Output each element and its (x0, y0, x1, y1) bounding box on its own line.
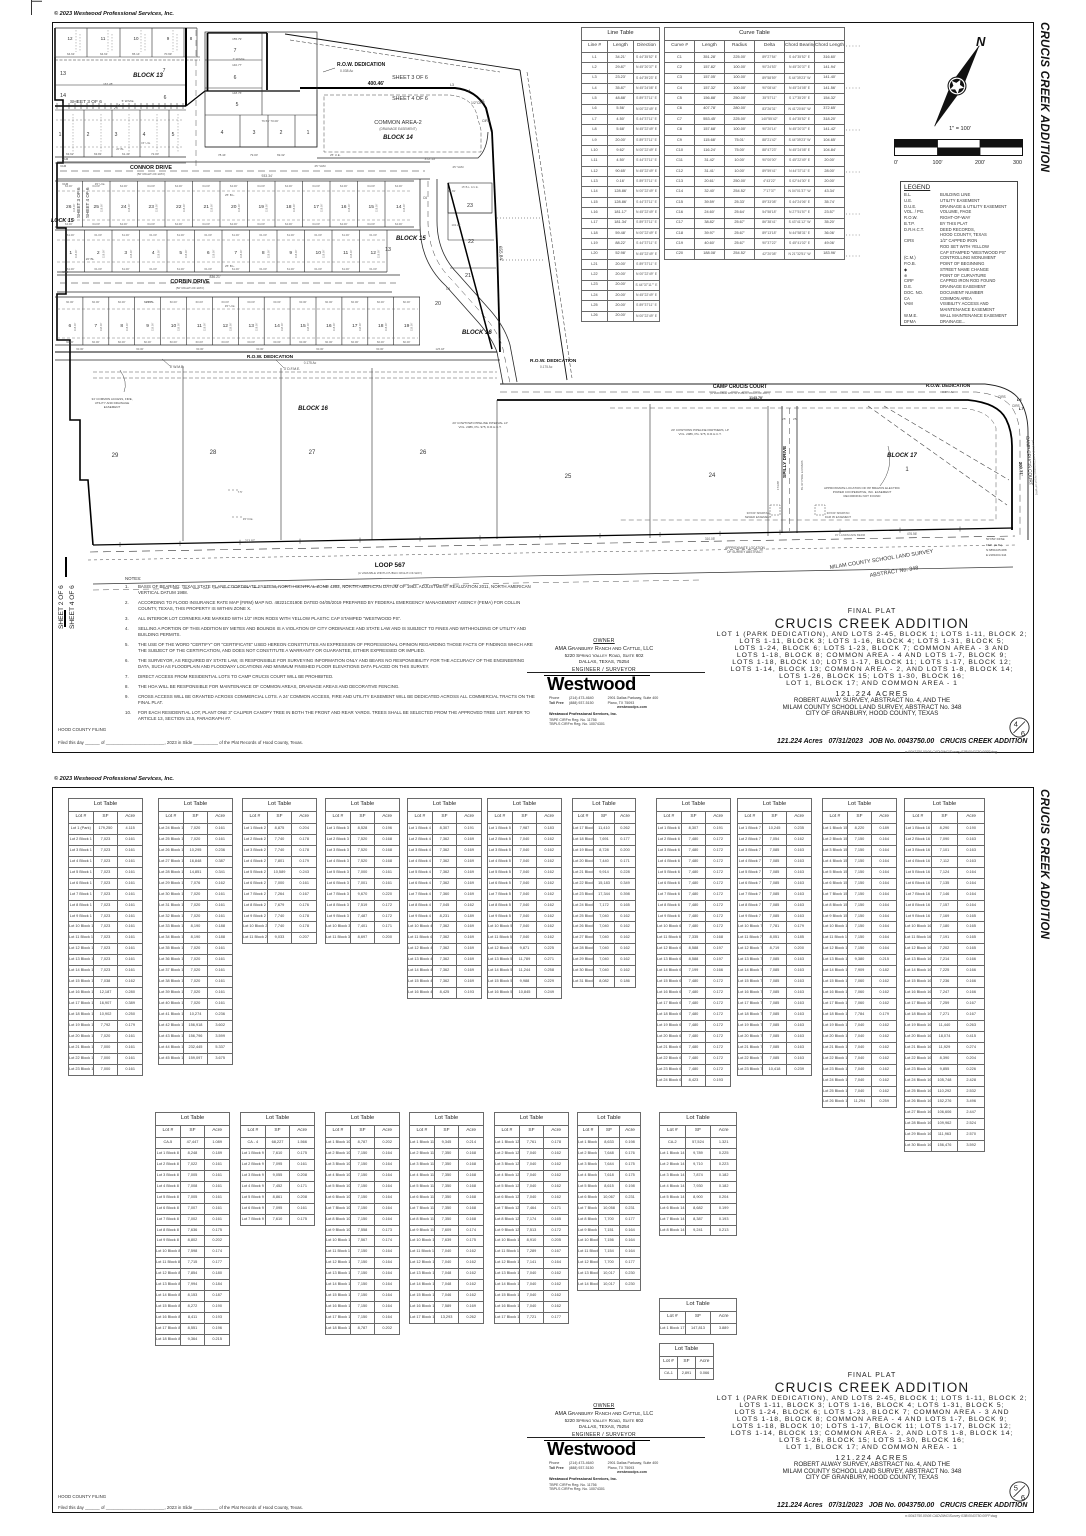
svg-text:4: 4 (152, 250, 155, 256)
svg-text:118.00': 118.00' (410, 322, 414, 331)
svg-text:118.00': 118.00' (377, 249, 381, 258)
svg-text:60.00': 60.00' (196, 347, 204, 351)
svg-text:13: 13 (60, 71, 66, 77)
svg-text:12: 12 (67, 36, 73, 41)
svg-text:6: 6 (164, 95, 167, 101)
svg-text:94.81': 94.81' (448, 189, 456, 193)
svg-text:17: 17 (352, 323, 358, 329)
svg-text:69.32': 69.32' (277, 153, 286, 157)
svg-text:13: 13 (248, 323, 254, 329)
svg-text:6: 6 (207, 250, 210, 256)
svg-text:63.62': 63.62' (66, 152, 75, 156)
svg-text:655.84': 655.84' (498, 246, 504, 261)
svg-text:118.00': 118.00' (320, 203, 324, 212)
svg-text:60.00': 60.00' (92, 340, 100, 344)
svg-text:61.00': 61.00' (67, 233, 75, 237)
svg-text:64.00': 64.00' (257, 222, 265, 226)
svg-text:R.O.W. DEDICATION: R.O.W. DEDICATION (337, 62, 386, 68)
svg-text:19: 19 (404, 323, 410, 329)
svg-text:LOCK 15: LOCK 15 (51, 218, 75, 224)
svg-text:1: 1 (69, 250, 72, 256)
svg-text:DAM 05 EASEMENT: DAM 05 EASEMENT (825, 515, 852, 519)
svg-text:64.00': 64.00' (147, 184, 155, 188)
svg-text:2: 2 (97, 250, 100, 256)
svg-text:VAM: VAM (62, 157, 69, 161)
svg-text:79.00': 79.00' (250, 153, 259, 157)
svg-text:VAM: VAM (62, 270, 69, 274)
svg-text:118.00': 118.00' (292, 203, 296, 212)
svg-text:64.00': 64.00' (175, 184, 183, 188)
svg-text:60.00': 60.00' (196, 340, 204, 344)
svg-text:15: 15 (368, 204, 374, 210)
svg-text:64.00': 64.00' (257, 184, 265, 188)
svg-text:FND. (C.M.): FND. (C.M.) (986, 543, 1002, 547)
svg-text:372.15': 372.15' (424, 157, 435, 161)
svg-text:61.00': 61.00' (259, 267, 267, 271)
svg-text:15' U.E.: 15' U.E. (225, 304, 236, 308)
svg-text:14: 14 (60, 93, 66, 99)
svg-text:SHEET 4 OF 6: SHEET 4 OF 6 (69, 585, 76, 629)
svg-text:R.O.W. DEDICATION: R.O.W. DEDICATION (247, 354, 294, 360)
svg-text:12: 12 (370, 250, 376, 256)
svg-text:125.48': 125.48' (435, 347, 445, 351)
svg-text:118.00': 118.00' (184, 249, 188, 258)
svg-text:6: 6 (1021, 729, 1025, 738)
svg-text:25' B.L.: 25' B.L. (225, 193, 235, 197)
svg-text:25' VAM: 25' VAM (314, 164, 326, 168)
svg-text:OF SURVEY ABSTRACT: OF SURVEY ABSTRACT (727, 550, 763, 554)
svg-text:L6: L6 (1017, 398, 1022, 402)
svg-text:(A VARIABLE WIDTH PUBLIC RIGHT: (A VARIABLE WIDTH PUBLIC RIGHT-OF-WAY) (710, 391, 770, 395)
svg-text:13: 13 (385, 247, 391, 253)
svg-text:60.00': 60.00' (247, 340, 255, 344)
svg-text:64.00': 64.00' (230, 184, 238, 188)
svg-text:25': 25' (782, 417, 786, 421)
svg-text:25': 25' (793, 417, 797, 421)
svg-text:25' B.L.: 25' B.L. (225, 264, 235, 268)
svg-text:(50' RIGHT-OF-WAY): (50' RIGHT-OF-WAY) (176, 286, 205, 290)
svg-text:11: 11 (197, 323, 202, 329)
svg-text:SHEET 3 OF 6: SHEET 3 OF 6 (392, 75, 428, 81)
svg-text:5: 5 (236, 102, 239, 108)
svg-text:60.00': 60.00' (247, 300, 255, 304)
svg-text:7' W.M.E.: 7' W.M.E. (233, 57, 246, 61)
svg-text:118.00': 118.00' (375, 203, 379, 212)
svg-text:15' LANDSCAPE BERM: 15' LANDSCAPE BERM (835, 533, 866, 537)
svg-text:60.00': 60.00' (136, 347, 144, 351)
svg-text:R.O.W. DEDICATION: R.O.W. DEDICATION (530, 358, 577, 364)
svg-text:213.87': 213.87' (245, 539, 256, 543)
svg-text:60.00': 60.00' (170, 340, 178, 344)
svg-text:72.00': 72.00' (151, 152, 160, 156)
svg-text:6: 6 (1021, 1493, 1025, 1502)
svg-text:118.00': 118.00' (239, 249, 243, 258)
svg-text:60.00': 60.00' (299, 300, 307, 304)
svg-text:6: 6 (234, 75, 237, 81)
svg-text:60.00': 60.00' (76, 347, 84, 351)
svg-text:20' BL: 20' BL (86, 257, 95, 261)
svg-text:19: 19 (258, 204, 264, 210)
svg-text:60.00': 60.00' (170, 300, 178, 304)
svg-text:60.00': 60.00' (222, 340, 230, 344)
svg-text:102.21': 102.21' (451, 223, 461, 227)
svg-text:78.44': 78.44' (218, 153, 227, 157)
svg-text:0.175 Ac: 0.175 Ac (304, 361, 317, 365)
svg-text:15' U.E.: 15' U.E. (141, 141, 151, 145)
svg-text:25' VAM: 25' VAM (452, 165, 464, 169)
svg-text:11: 11 (343, 250, 348, 256)
svg-text:SHEET 4 OF 6: SHEET 4 OF 6 (85, 187, 90, 218)
svg-text:60.00': 60.00' (118, 340, 126, 344)
svg-text:BL 10' PSDE & ROADS: BL 10' PSDE & ROADS (800, 460, 804, 490)
svg-text:61.49': 61.49' (122, 152, 131, 156)
svg-text:61.00': 61.00' (149, 233, 157, 237)
svg-text:61.00': 61.00' (204, 267, 212, 271)
svg-text:60.00': 60.00' (403, 340, 411, 344)
svg-text:9: 9 (167, 36, 170, 41)
svg-text:N: N (976, 34, 986, 49)
svg-text:14: 14 (274, 323, 280, 329)
svg-text:61.00': 61.00' (342, 267, 350, 271)
svg-text:118.00': 118.00' (280, 322, 284, 331)
svg-text:10: 10 (171, 323, 177, 329)
svg-text:60.00': 60.00' (273, 300, 281, 304)
svg-text:SHEET 3 OF 6: SHEET 3 OF 6 (76, 187, 81, 218)
svg-text:24: 24 (121, 204, 127, 210)
svg-text:100': 100' (932, 160, 942, 165)
svg-text:60.00': 60.00' (299, 340, 307, 344)
svg-text:61.00': 61.00' (177, 267, 185, 271)
svg-text:118.00': 118.00' (347, 203, 351, 212)
svg-text:VOL. 2086, PG. 975, D.R.H.C.T.: VOL. 2086, PG. 975, D.R.H.C.T. (458, 425, 501, 429)
svg-text:9: 9 (289, 250, 292, 256)
svg-text:7: 7 (234, 48, 237, 54)
svg-text:118.00': 118.00' (129, 249, 133, 258)
svg-text:SPILLY DRIVE: SPILLY DRIVE (782, 445, 788, 478)
svg-text:300: 300 (1013, 160, 1022, 165)
svg-text:3: 3 (124, 250, 127, 256)
svg-text:21: 21 (465, 273, 471, 279)
svg-text:L5: L5 (480, 99, 484, 103)
svg-text:6: 6 (69, 323, 72, 329)
svg-text:64.00': 64.00' (65, 184, 73, 188)
svg-text:64.00': 64.00' (285, 222, 293, 226)
svg-text:16: 16 (326, 323, 332, 329)
svg-text:25: 25 (565, 474, 572, 480)
svg-text:64.00': 64.00' (312, 184, 320, 188)
svg-text:10: 10 (133, 36, 139, 41)
svg-text:155.79': 155.79' (232, 37, 242, 41)
svg-text:60.00': 60.00' (377, 300, 385, 304)
svg-text:60.00': 60.00' (196, 300, 204, 304)
svg-text:3' D.F.M.E.: 3' D.F.M.E. (284, 367, 301, 371)
svg-text:310.05': 310.05' (705, 537, 716, 541)
svg-text:0.038 Ac: 0.038 Ac (340, 69, 354, 73)
svg-text:118.00': 118.00' (74, 249, 78, 258)
svg-text:63.81': 63.81' (94, 152, 103, 156)
svg-text:64.00': 64.00' (120, 222, 128, 226)
svg-text:64.00': 64.00' (340, 222, 348, 226)
svg-text:28: 28 (210, 450, 217, 456)
svg-text:60.00': 60.00' (273, 340, 281, 344)
svg-text:7: 7 (94, 323, 97, 329)
svg-text:2: 2 (280, 130, 283, 136)
svg-text:SEWER EASEMENT: SEWER EASEMENT (745, 515, 772, 519)
svg-text:60.00': 60.00' (66, 300, 74, 304)
svg-text:61.00': 61.00' (177, 233, 185, 237)
svg-text:64.00': 64.00' (367, 222, 375, 226)
svg-text:14: 14 (396, 204, 402, 210)
svg-text:8: 8 (120, 323, 123, 329)
svg-text:60.00': 60.00' (66, 340, 74, 344)
svg-text:EASEMENT: EASEMENT (104, 405, 121, 409)
svg-text:118.00': 118.00' (127, 203, 131, 212)
svg-text:25: 25 (93, 204, 99, 210)
svg-text:118.00': 118.00' (73, 322, 77, 331)
svg-text:118.00': 118.00' (210, 203, 214, 212)
svg-text:2: 2 (87, 132, 90, 138)
svg-text:400.46': 400.46' (368, 81, 384, 87)
svg-text:118.00': 118.00' (332, 322, 336, 331)
svg-text:SHEET 2 OF 6: SHEET 2 OF 6 (58, 585, 65, 629)
svg-text:64.00': 64.00' (340, 184, 348, 188)
svg-text:20' BL: 20' BL (116, 147, 124, 151)
svg-text:118.00': 118.00' (349, 249, 353, 258)
svg-text:22: 22 (468, 239, 474, 245)
svg-text:61.00': 61.00' (94, 233, 102, 237)
svg-text:9: 9 (146, 323, 149, 329)
svg-text:64.00': 64.00' (147, 222, 155, 226)
svg-text:16: 16 (341, 204, 347, 210)
svg-text:118.00': 118.00' (177, 322, 181, 331)
svg-text:BLOCK 16: BLOCK 16 (298, 406, 328, 412)
svg-text:18: 18 (286, 204, 292, 210)
svg-text:4: 4 (1014, 720, 1018, 729)
svg-text:64.00': 64.00' (312, 222, 320, 226)
svg-text:118.00': 118.00' (125, 322, 129, 331)
svg-text:60.00': 60.00' (316, 347, 324, 351)
svg-text:17: 17 (313, 204, 319, 210)
svg-text:CAMP CRUCIS COURT: CAMP CRUCIS COURT (713, 384, 767, 390)
svg-text:61.00': 61.00' (259, 233, 267, 237)
svg-text:0.373 Ac: 0.373 Ac (942, 390, 954, 394)
svg-text:15' D.E.: 15' D.E. (243, 517, 254, 521)
svg-text:1: 1 (59, 132, 62, 138)
svg-text:R.O.W. DEDICATION: R.O.W. DEDICATION (926, 383, 971, 388)
svg-text:8: 8 (262, 250, 265, 256)
svg-text:7.5': 7.5' (238, 490, 243, 494)
svg-text:118.00': 118.00' (384, 322, 388, 331)
svg-text:118.00': 118.00' (212, 249, 216, 258)
svg-text:7: 7 (234, 250, 237, 256)
svg-text:61.00': 61.00' (369, 233, 377, 237)
svg-text:118.00': 118.00' (322, 249, 326, 258)
svg-text:0': 0' (894, 160, 898, 165)
svg-text:5' W.M.E.: 5' W.M.E. (122, 99, 135, 103)
svg-text:476.56': 476.56' (907, 532, 918, 536)
svg-text:65.14': 65.14' (132, 52, 141, 56)
svg-text:118.00': 118.00' (358, 322, 362, 331)
svg-text:24: 24 (709, 473, 716, 479)
svg-text:50'X50' DFSE: 50'X50' DFSE (986, 537, 1005, 541)
svg-text:61.00': 61.00' (342, 233, 350, 237)
svg-text:N:6851025.088: N:6851025.088 (986, 548, 1007, 552)
svg-text:64.00': 64.00' (230, 222, 238, 226)
svg-text:61.00': 61.00' (94, 267, 102, 271)
svg-text:26: 26 (66, 204, 72, 210)
svg-text:VAM: VAM (60, 164, 67, 168)
svg-text:3: 3 (253, 130, 256, 136)
svg-text:118.00': 118.00' (99, 322, 103, 331)
svg-text:22: 22 (176, 204, 182, 210)
svg-text:140.77': 140.77' (232, 63, 242, 67)
svg-text:118.00': 118.00' (402, 203, 406, 212)
svg-text:LOOP 567: LOOP 567 (375, 562, 406, 569)
svg-text:CIRS: CIRS (482, 119, 491, 123)
svg-text:VOL. 2086, PG. 975, D.R.H.C.T.: VOL. 2086, PG. 975, D.R.H.C.T. (678, 432, 721, 436)
svg-text:60.00': 60.00' (377, 340, 385, 344)
svg-text:15' B.L. & U.E.: 15' B.L. & U.E. (462, 185, 479, 189)
svg-text:1143.70': 1143.70' (749, 396, 763, 400)
svg-text:76.55' 70.00': 76.55' 70.00' (262, 119, 279, 123)
svg-text:CONNOR DRIVE: CONNOR DRIVE (130, 165, 172, 171)
svg-text:64.00': 64.00' (92, 222, 100, 226)
svg-text:COMMON AREA-2: COMMON AREA-2 (374, 120, 422, 126)
svg-text:118.00': 118.00' (151, 322, 155, 331)
svg-text:BLOCK 15: BLOCK 15 (396, 236, 426, 242)
svg-text:118.00': 118.00' (265, 203, 269, 212)
svg-text:1: 1 (905, 467, 909, 473)
svg-text:118.00': 118.00' (100, 203, 104, 212)
svg-text:CORBIN DRIVE: CORBIN DRIVE (170, 279, 210, 285)
svg-text:CIRS: CIRS (998, 395, 1006, 399)
svg-text:5: 5 (1014, 1484, 1018, 1493)
svg-text:L3: L3 (450, 83, 454, 87)
svg-text:RECORDING NOT FOUND: RECORDING NOT FOUND (844, 494, 882, 498)
svg-text:C8: C8 (446, 287, 450, 291)
svg-text:61.00': 61.00' (122, 267, 130, 271)
svg-text:118.00': 118.00' (102, 249, 106, 258)
svg-text:3: 3 (115, 132, 118, 138)
svg-text:15' U.E.: 15' U.E. (95, 182, 106, 186)
svg-text:60.00': 60.00' (403, 300, 411, 304)
svg-text:118.00': 118.00' (203, 322, 207, 331)
svg-text:933.34': 933.34' (261, 174, 272, 178)
svg-text:21: 21 (203, 204, 209, 210)
svg-text:27: 27 (309, 450, 316, 456)
svg-text:118.00': 118.00' (294, 249, 298, 258)
svg-text:5' W.M.E.: 5' W.M.E. (170, 365, 184, 369)
svg-text:64.61': 64.61' (67, 52, 76, 56)
svg-text:MILAM COUNTY SCHOOL LAND SURVE: MILAM COUNTY SCHOOL LAND SURVEY (829, 549, 934, 571)
svg-text:60.00': 60.00' (325, 340, 333, 344)
svg-text:64.00': 64.00' (175, 222, 183, 226)
svg-text:5: 5 (179, 250, 182, 256)
svg-text:118.00': 118.00' (157, 249, 161, 258)
svg-text:E:2181004.344: E:2181004.344 (986, 553, 1007, 557)
svg-text:25' U.E.: 25' U.E. (330, 153, 341, 157)
svg-text:61.00': 61.00' (287, 233, 295, 237)
svg-text:61.00': 61.00' (232, 233, 240, 237)
svg-text:18: 18 (378, 323, 384, 329)
svg-text:64.00': 64.00' (285, 184, 293, 188)
svg-text:4: 4 (221, 130, 224, 136)
svg-text:61.00': 61.00' (149, 267, 157, 271)
svg-text:ABSTRACT No. 348: ABSTRACT No. 348 (869, 565, 918, 579)
svg-text:60.00': 60.00' (376, 347, 384, 351)
svg-text:23: 23 (467, 203, 473, 209)
svg-text:118.00': 118.00' (228, 322, 232, 331)
svg-text:200': 200' (975, 160, 985, 165)
svg-text:61.00': 61.00' (204, 233, 212, 237)
svg-text:60.00': 60.00' (118, 300, 126, 304)
svg-text:BLOCK 13: BLOCK 13 (133, 73, 163, 79)
svg-text:118.00': 118.00' (306, 322, 310, 331)
svg-text:118.00': 118.00' (237, 203, 241, 212)
svg-text:BLOCK 14: BLOCK 14 (383, 135, 413, 141)
svg-text:174.88': 174.88' (776, 480, 780, 490)
svg-text:20: 20 (231, 204, 237, 210)
svg-text:70.99': 70.99' (164, 52, 173, 56)
svg-text:60.00': 60.00' (92, 300, 100, 304)
svg-text:BLOCK 17: BLOCK 17 (887, 453, 917, 459)
svg-text:C6: C6 (423, 196, 427, 200)
svg-text:11: 11 (101, 36, 106, 41)
svg-text:8: 8 (190, 36, 193, 41)
svg-text:60.00': 60.00' (325, 300, 333, 304)
svg-text:60.00': 60.00' (256, 347, 264, 351)
svg-text:64.00': 64.00' (202, 222, 210, 226)
svg-text:29: 29 (112, 453, 119, 459)
svg-text:148.76': 148.76' (232, 91, 242, 95)
svg-text:200.31': 200.31' (1018, 462, 1024, 476)
svg-text:118.00': 118.00' (155, 203, 159, 212)
svg-text:61.00': 61.00' (287, 267, 295, 271)
svg-text:167.28': 167.28' (103, 82, 113, 86)
svg-text:23: 23 (148, 204, 154, 210)
svg-text:4: 4 (143, 132, 146, 138)
svg-text:(A VARIABLE WIDTH PUBLIC RIGHT: (A VARIABLE WIDTH PUBLIC RIGHT-OF-WAY) (358, 571, 422, 575)
svg-text:61.00': 61.00' (314, 267, 322, 271)
svg-text:64.00': 64.00' (395, 184, 403, 188)
svg-text:61.00': 61.00' (314, 233, 322, 237)
svg-text:L4: L4 (466, 89, 470, 93)
svg-text:10: 10 (315, 250, 321, 256)
svg-text:5: 5 (172, 132, 175, 138)
svg-text:64.00': 64.00' (120, 184, 128, 188)
svg-text:20: 20 (435, 301, 441, 307)
svg-text:0.175 Ac: 0.175 Ac (540, 365, 553, 369)
svg-text:(DRAINAGE EASEMENT): (DRAINAGE EASEMENT) (379, 127, 416, 131)
svg-text:60.00': 60.00' (351, 340, 359, 344)
svg-text:118.00': 118.00' (182, 203, 186, 212)
svg-text:836.21': 836.21' (209, 275, 220, 279)
svg-text:60.00': 60.00' (351, 300, 359, 304)
svg-text:26: 26 (420, 450, 427, 456)
svg-text:64.00': 64.00' (395, 222, 403, 226)
svg-text:25' BL: 25' BL (146, 300, 155, 304)
svg-text:15: 15 (300, 323, 306, 329)
svg-text:118.00': 118.00' (267, 249, 271, 258)
svg-text:64.00': 64.00' (367, 184, 375, 188)
svg-text:12: 12 (223, 323, 229, 329)
svg-text:64.61': 64.61' (100, 52, 109, 56)
svg-text:(50' RIGHT-OF-WAY): (50' RIGHT-OF-WAY) (137, 172, 166, 176)
svg-text:61.00': 61.00' (122, 233, 130, 237)
svg-text:1: 1 (307, 130, 310, 136)
svg-text:60.00': 60.00' (144, 340, 152, 344)
svg-text:118.00': 118.00' (254, 322, 258, 331)
